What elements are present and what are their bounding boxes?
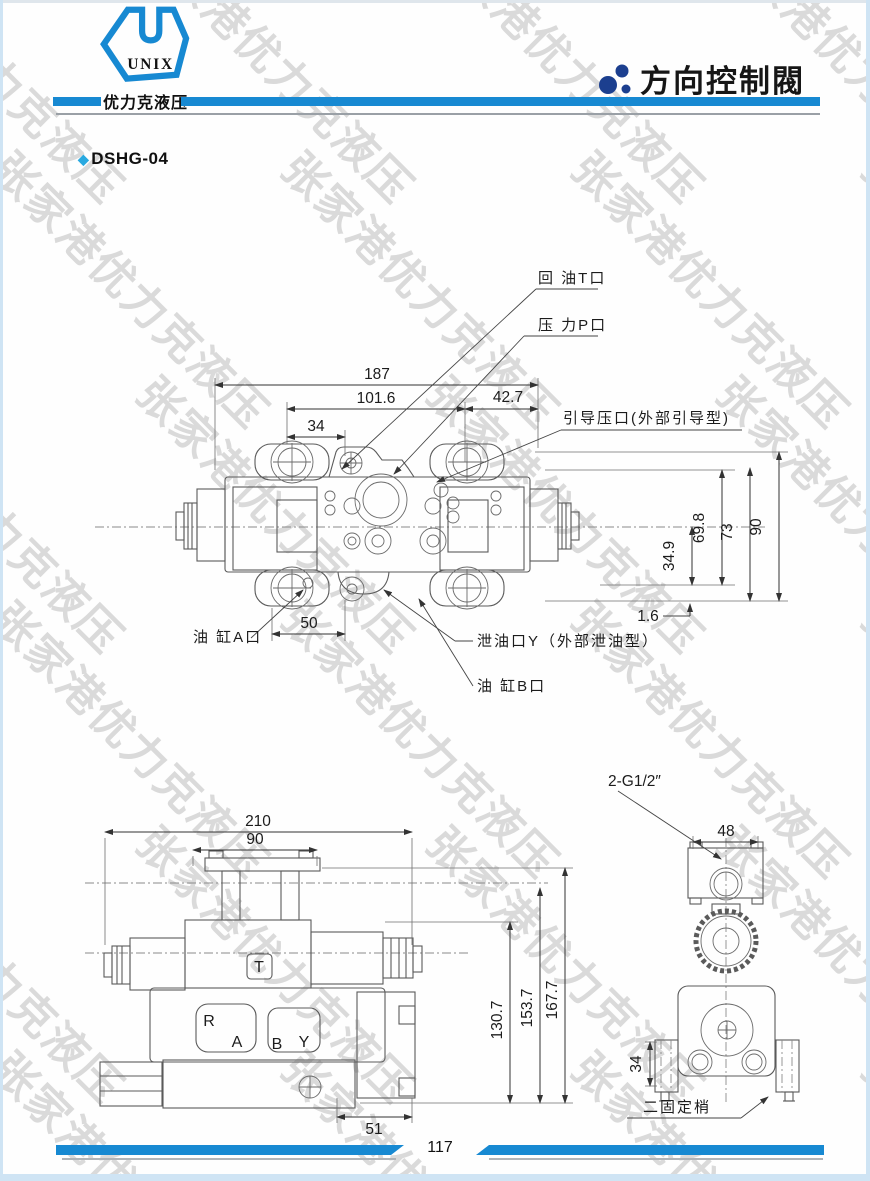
dim-right-offset: 42.7: [493, 389, 523, 406]
label-b-port: 油 缸B口: [477, 677, 546, 695]
dim-port-spacing: 34: [307, 418, 325, 435]
top-view-port-labels: 回 油T口 压 力P口 引导压口(外部引导型) 油 缸A口 泄油口Y（外部泄油型…: [193, 270, 742, 695]
dim-front-top-width: 90: [246, 831, 264, 848]
catalog-page: 张家港优力克液压张家港优力克液压张家港优力克液压张家港优力克液压张家港优力克液压…: [0, 0, 870, 1181]
front-view-drawing: T R A B Y 210 90 167.7: [85, 813, 573, 1138]
title-block: 方向控制閥: [596, 56, 805, 101]
footer-bar-right: [476, 1145, 824, 1155]
top-view-dimensions: 187 101.6 42.7 34 50 34.9: [215, 366, 788, 641]
footer-bar-left: [56, 1145, 404, 1155]
dim-167-7: 167.7: [544, 981, 561, 1020]
front-view-dimensions: 210 90 167.7 153.7 130.7 51: [105, 813, 573, 1138]
front-view-outline: [100, 851, 422, 1108]
side-view-outline: [655, 842, 799, 1101]
logo-brand-text: UNIX: [127, 56, 174, 73]
footer-line-right: [489, 1158, 823, 1160]
dim-bottom-offset: 51: [365, 1121, 382, 1138]
label-thread: 2-G1/2″: [608, 773, 661, 790]
dim-73: 73: [719, 523, 736, 540]
front-view-details: [299, 1076, 321, 1098]
page-number: 117: [404, 1139, 476, 1157]
diamond-icon: ◆: [78, 151, 89, 168]
header-hairline: [56, 113, 820, 115]
header-bar-left: [53, 97, 101, 106]
top-view-drawing: 187 101.6 42.7 34 50 34.9: [95, 270, 788, 695]
label-p-port: 压 力P口: [538, 317, 607, 334]
page-header: UNIX 优力克液压 方向控制閥: [0, 0, 870, 130]
page-title: 方向控制閥: [640, 56, 805, 101]
dim-body-width: 101.6: [357, 390, 396, 407]
label-y-port: 泄油口Y（外部泄油型）: [477, 633, 659, 650]
label-a: A: [232, 1034, 243, 1051]
label-a-port: 油 缸A口: [193, 628, 262, 646]
section-label: ◆ DSHG-04: [78, 149, 168, 169]
dim-130-7: 130.7: [489, 1001, 506, 1040]
label-r: R: [203, 1013, 215, 1030]
dim-edge-gap: 1.6: [637, 608, 659, 625]
model-number: DSHG-04: [91, 149, 168, 169]
side-view-dimensions: 48 2-G1/2″ 34 二固定梢: [608, 773, 768, 1118]
title-dots-icon: [596, 59, 634, 99]
dim-side-width: 48: [717, 823, 734, 840]
label-fixing-pin: 二固定梢: [643, 1099, 711, 1116]
label-t: T: [254, 959, 264, 976]
dim-153-7: 153.7: [519, 989, 536, 1028]
dim-90: 90: [748, 518, 765, 536]
unix-logo: UNIX: [92, 4, 196, 92]
label-t-port: 回 油T口: [538, 270, 606, 287]
label-b: B: [272, 1036, 283, 1053]
brand-chinese-name: 优力克液压: [103, 89, 193, 113]
dim-69-8: 69.8: [691, 513, 708, 543]
footer-line-left: [62, 1158, 396, 1160]
side-view-drawing: 48 2-G1/2″ 34 二固定梢: [608, 773, 799, 1118]
dim-front-total-width: 210: [245, 813, 271, 830]
side-view-details: [661, 868, 792, 1092]
label-y: Y: [299, 1034, 310, 1051]
dim-bottom-spacing: 50: [300, 615, 318, 632]
label-pilot-port: 引导压口(外部引导型): [563, 410, 730, 427]
dim-pin-height: 34: [628, 1055, 645, 1073]
dim-center-height: 34.9: [661, 541, 678, 571]
valve-body-outline: [176, 444, 579, 606]
dim-total-width: 187: [364, 366, 390, 383]
technical-drawings: 187 101.6 42.7 34 50 34.9: [0, 0, 870, 1181]
